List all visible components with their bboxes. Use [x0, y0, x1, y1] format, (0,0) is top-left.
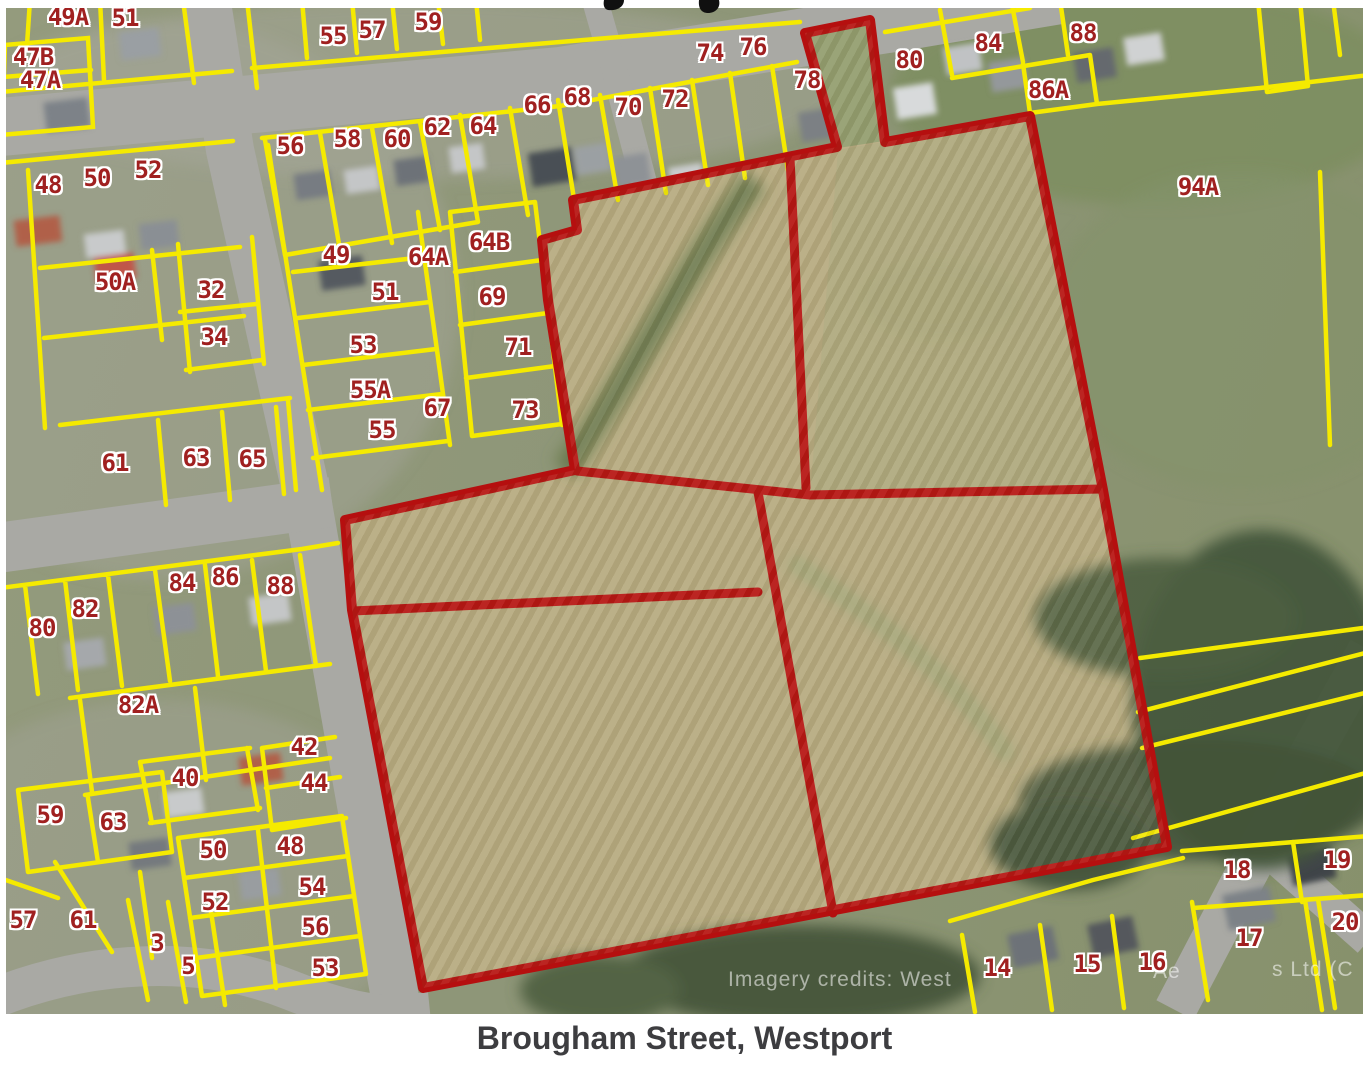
aerial-map: Imagery credits: WestAes Ltd (C 49A51555… [6, 8, 1363, 1014]
map-figure: Imagery credits: WestAes Ltd (C 49A51555… [0, 0, 1369, 1072]
aerial-imagery-layer [6, 8, 1363, 1014]
map-caption: Brougham Street, Westport [0, 1020, 1369, 1057]
